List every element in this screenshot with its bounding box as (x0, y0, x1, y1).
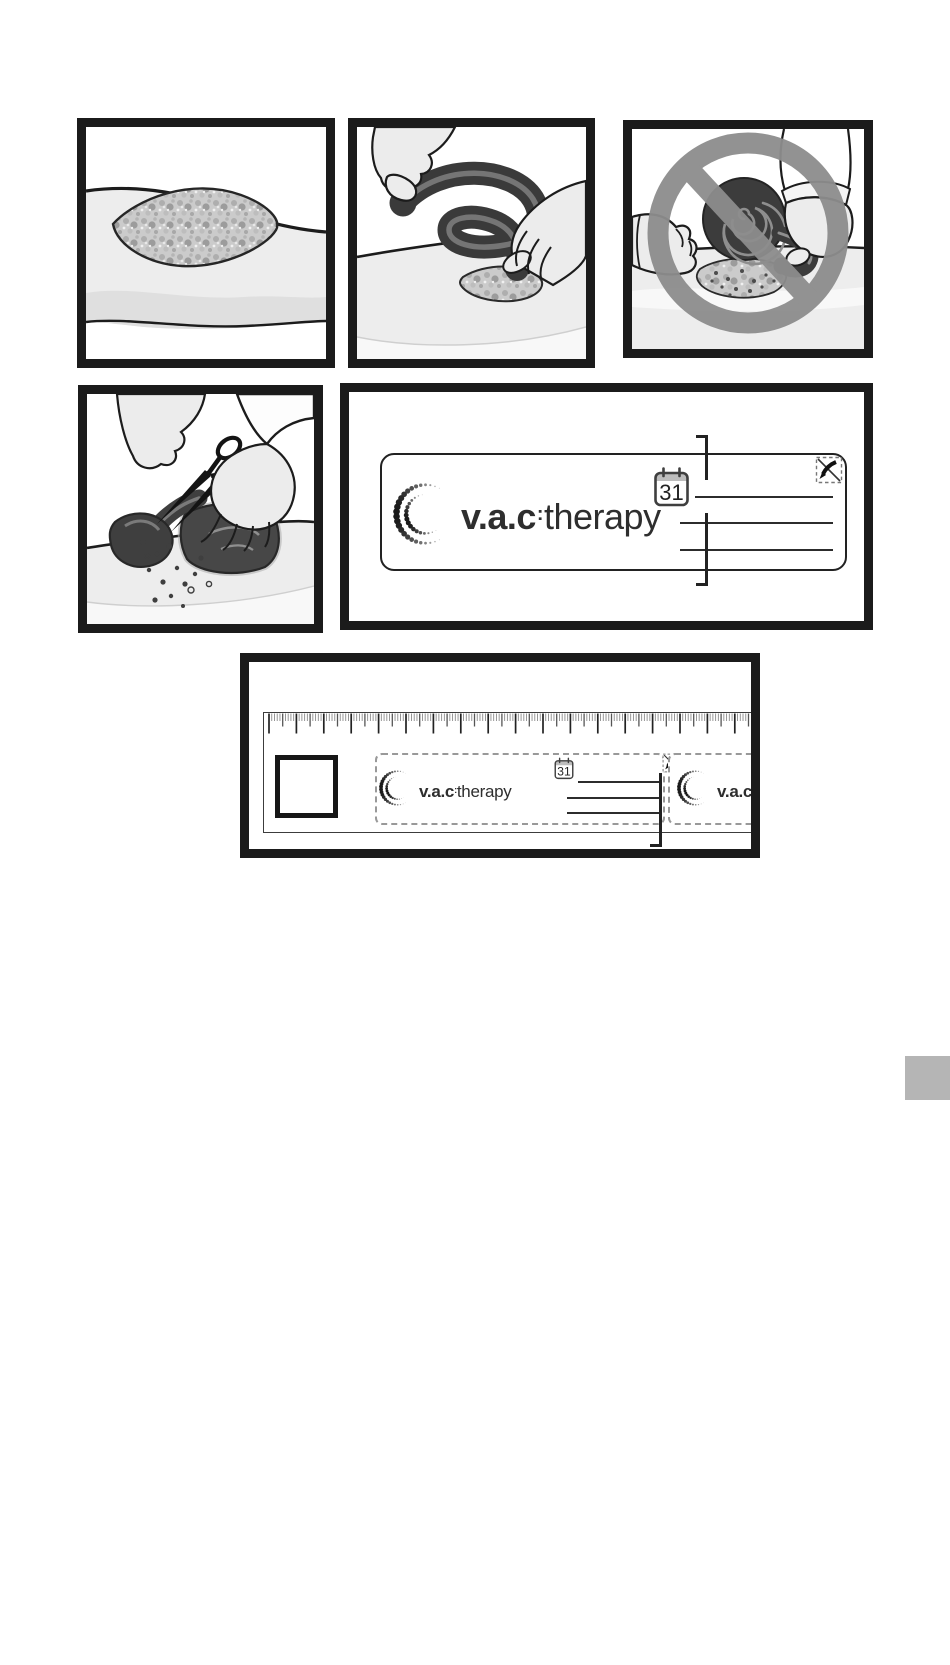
calendar-day-label: 31 (557, 765, 571, 779)
vac-logo-wordmark: v.a.c: (717, 779, 755, 801)
logo-bold-text: v.a.c (419, 782, 454, 801)
logo-separator: : (537, 503, 543, 525)
cut-dressing-illustration (87, 394, 314, 624)
write-line (680, 522, 833, 524)
figure-panel-place-dressing (348, 118, 595, 368)
write-line (567, 812, 660, 814)
write-line (680, 549, 833, 551)
page-edge-tab (905, 1056, 950, 1100)
bracket-line (705, 435, 708, 480)
calendar-day-label: 31 (659, 480, 683, 505)
document-page: v.a.c:therapy 31 v.a.c:therapy (0, 0, 950, 1665)
write-here-icon (815, 456, 843, 484)
calendar-icon: 31 (553, 757, 575, 780)
place-dressing-illustration (357, 127, 586, 359)
bracket-line (659, 773, 662, 847)
logo-bold-text: v.a.c (461, 496, 536, 537)
bracket-top-cap (696, 435, 708, 438)
figure-panel-open-wound (77, 118, 335, 368)
logo-rest-text: therapy (544, 496, 661, 537)
open-wound-illustration (86, 127, 326, 359)
figure-panel-dressing-label: v.a.c:therapy 31 (340, 383, 873, 630)
figure-panel-do-not-coil (623, 120, 873, 358)
bracket-bottom-cap (696, 583, 708, 586)
logo-rest-text: therapy (457, 782, 512, 801)
vac-logo-icon (379, 762, 417, 814)
logo-bold-text: v.a.c (717, 782, 752, 801)
bracket-bottom-cap (650, 844, 662, 847)
vac-logo-wordmark: v.a.c:therapy (461, 492, 661, 536)
measure-square (275, 755, 338, 818)
left-hand (117, 394, 205, 468)
vac-logo-wordmark: v.a.c:therapy (419, 779, 511, 801)
vac-logo-icon (677, 762, 715, 814)
vac-logo-icon (393, 468, 459, 560)
do-not-coil-illustration (632, 129, 864, 349)
date-write-line (578, 781, 660, 783)
logo-separator: : (752, 785, 755, 795)
figure-panel-cut-dressing (78, 385, 323, 633)
write-line (567, 797, 660, 799)
figure-panel-ruler: v.a.c:therapy 31 v.a.c: (240, 653, 760, 858)
calendar-icon: 31 (651, 466, 692, 508)
bracket-line (705, 513, 708, 586)
date-write-line (695, 496, 833, 498)
dressing-label-card: v.a.c:therapy (380, 453, 847, 571)
ruler-ticks (263, 713, 751, 745)
